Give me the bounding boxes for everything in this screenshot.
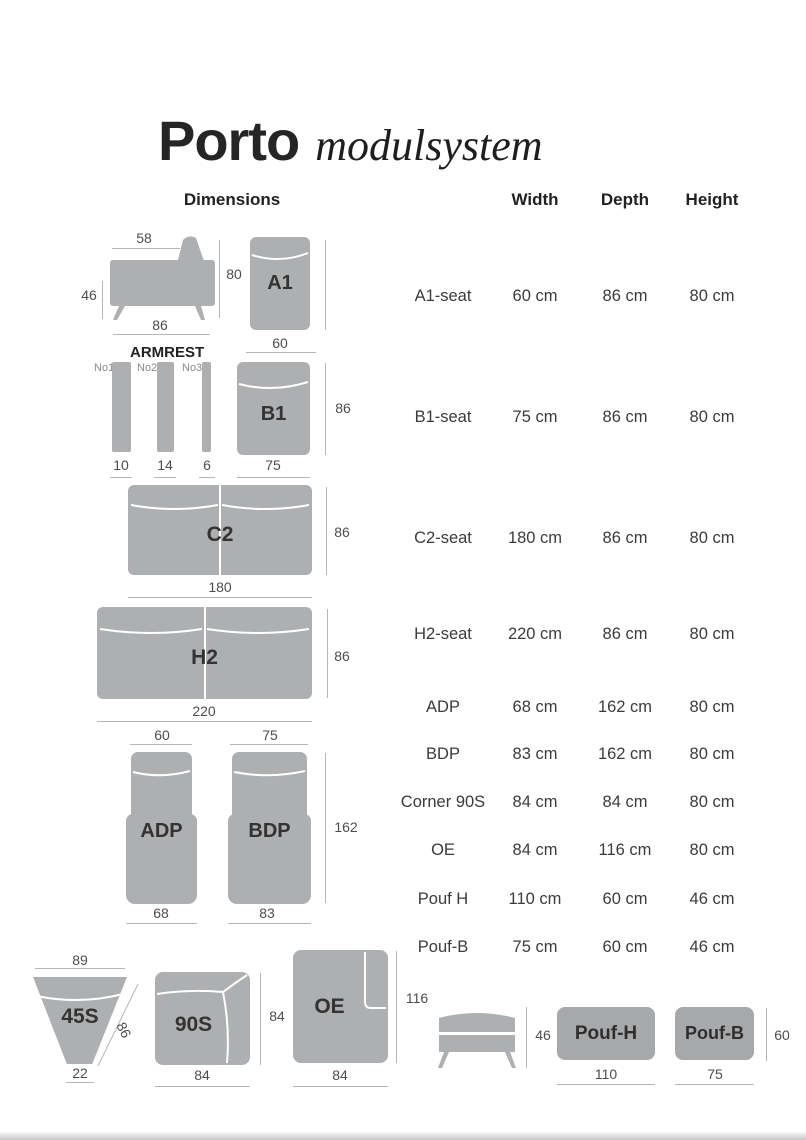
row-height: 46 cm — [657, 938, 767, 957]
armrest-heading: ARMREST — [130, 344, 204, 361]
row-height: 80 cm — [657, 625, 767, 644]
dim-line — [526, 1007, 527, 1068]
pouf-b-width-dim: 75 — [701, 1066, 729, 1082]
module-adp-back — [131, 752, 192, 818]
armrest-no2-bar — [157, 362, 174, 452]
dim-line — [326, 487, 327, 575]
dim-line — [325, 363, 326, 455]
dim-line — [327, 609, 328, 698]
h2-depth-dim: 86 — [330, 648, 354, 664]
bdp-top-dim: 75 — [256, 727, 284, 743]
module-b1: B1 — [237, 362, 310, 455]
pouf-side-height-dim: 46 — [531, 1027, 555, 1043]
dim-line — [228, 923, 311, 924]
module-bdp-label: BDP — [228, 820, 311, 843]
pouf-h-width-dim: 110 — [589, 1066, 623, 1082]
armrest-no2-value: 14 — [154, 457, 176, 473]
adp-top-dim: 60 — [148, 727, 176, 743]
dim-line — [675, 1084, 754, 1085]
dim-line — [154, 477, 176, 478]
dim-line — [113, 334, 210, 335]
sideview-bottom-dim: 86 — [146, 317, 174, 333]
dim-line — [557, 1084, 655, 1085]
dim-line — [325, 753, 326, 903]
module-c2: C2 — [128, 485, 312, 575]
dim-line — [219, 240, 220, 318]
module-pouf-b-label: Pouf-B — [685, 1023, 744, 1044]
row-height: 80 cm — [657, 698, 767, 717]
module-oe: OE — [293, 950, 388, 1063]
row-height: 80 cm — [657, 841, 767, 860]
pouf-side-view-drawing — [435, 1005, 525, 1070]
module-h2-label: H2 — [191, 646, 218, 670]
s90-right-dim: 84 — [265, 1008, 289, 1024]
module-adp-label: ADP — [126, 820, 197, 843]
dim-line — [126, 923, 197, 924]
row-height: 80 cm — [657, 408, 767, 427]
armrest-no1-bar — [112, 362, 131, 452]
dim-line — [246, 352, 316, 353]
bdp-bottom-dim: 83 — [253, 905, 281, 921]
dim-line — [396, 951, 397, 1063]
a1-width-dim: 60 — [266, 335, 294, 351]
c2-width-dim: 180 — [200, 579, 240, 595]
armrest-no2-label: No2 — [137, 362, 157, 374]
dim-line — [35, 968, 125, 969]
dim-line — [112, 248, 180, 249]
dim-line — [199, 477, 215, 478]
dim-line — [237, 477, 310, 478]
module-oe-label: OE — [314, 995, 344, 1019]
b1-depth-dim: 86 — [331, 400, 355, 416]
dim-line — [155, 1086, 250, 1087]
sofa-side-view-drawing — [95, 232, 225, 324]
brand-name: Porto — [158, 108, 299, 173]
row-height: 46 cm — [657, 890, 767, 909]
dim-line — [128, 597, 312, 598]
armrest-no1-value: 10 — [110, 457, 132, 473]
row-height: 80 cm — [657, 793, 767, 812]
dim-line — [260, 973, 261, 1065]
c2-depth-dim: 86 — [330, 524, 354, 540]
s90-bottom-dim: 84 — [188, 1067, 216, 1083]
dim-line — [130, 744, 192, 745]
module-pouf-h-label: Pouf-H — [575, 1023, 637, 1045]
module-bdp-back — [232, 752, 307, 818]
s45-bottom-dim: 22 — [66, 1065, 94, 1081]
module-pouf-h: Pouf-H — [557, 1007, 655, 1060]
dim-line — [325, 240, 326, 330]
oe-bottom-dim: 84 — [326, 1067, 354, 1083]
page-bottom-edge — [0, 1131, 806, 1140]
product-line: modulsystem — [315, 120, 542, 171]
row-height: 80 cm — [657, 745, 767, 764]
oe-right-dim: 116 — [400, 990, 434, 1006]
column-header-dimensions: Dimensions — [162, 190, 302, 210]
dim-line — [66, 1082, 94, 1083]
module-pouf-b: Pouf-B — [675, 1007, 754, 1060]
sideview-left-dim: 46 — [78, 287, 100, 303]
pouf-b-height-dim: 60 — [770, 1027, 794, 1043]
dim-line — [102, 281, 103, 319]
module-c2-label: C2 — [207, 523, 234, 547]
module-h2: H2 — [97, 607, 312, 699]
module-90s-label: 90S — [175, 1013, 212, 1037]
spec-sheet: Porto modulsystem Dimensions Width Depth… — [0, 0, 806, 1140]
module-90s: 90S — [155, 972, 250, 1065]
module-b1-label: B1 — [261, 403, 287, 426]
armrest-no3-bar — [202, 362, 211, 452]
dim-line — [766, 1008, 767, 1061]
dim-line — [293, 1086, 388, 1087]
dim-line — [97, 721, 312, 722]
sideview-top-dim: 58 — [130, 230, 158, 246]
armrest-no3-value: 6 — [200, 457, 214, 473]
s45-top-dim: 89 — [66, 952, 94, 968]
b1-width-dim: 75 — [259, 457, 287, 473]
module-a1: A1 — [250, 237, 310, 330]
armrest-no3-label: No3 — [182, 362, 202, 374]
module-a1-label: A1 — [267, 272, 293, 295]
sideview-height-dim: 80 — [222, 266, 246, 282]
module-adp: ADP — [126, 752, 197, 904]
dim-line — [110, 477, 132, 478]
module-bdp: BDP — [228, 752, 311, 904]
page-title: Porto modulsystem — [158, 108, 543, 173]
dim-line — [230, 744, 308, 745]
column-header-height: Height — [657, 190, 767, 210]
row-height: 80 cm — [657, 529, 767, 548]
adp-bdp-height-dim: 162 — [328, 819, 364, 835]
h2-width-dim: 220 — [184, 703, 224, 719]
row-height: 80 cm — [657, 287, 767, 306]
adp-bottom-dim: 68 — [147, 905, 175, 921]
